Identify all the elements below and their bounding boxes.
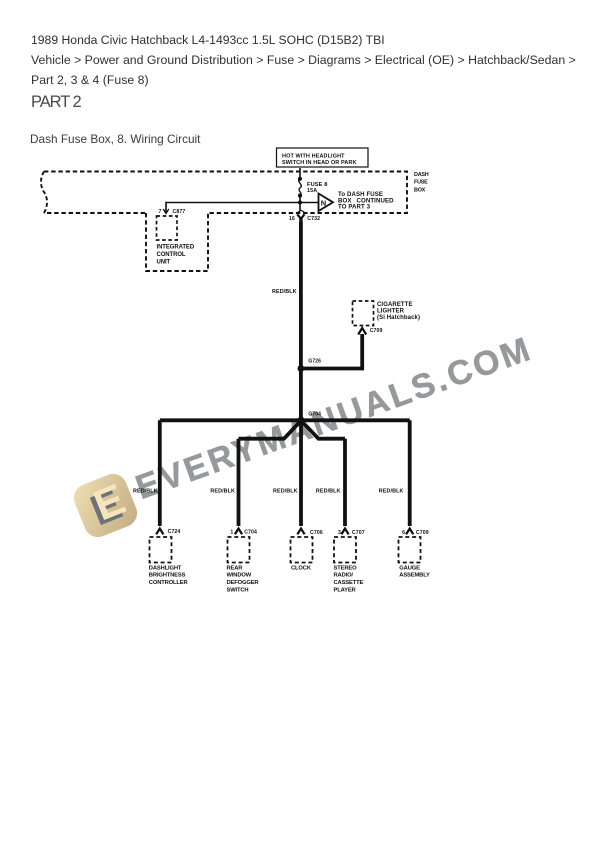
svg-text:1: 1 [230, 529, 233, 535]
svg-text:HOT WITH HEADLIGHT: HOT WITH HEADLIGHT [282, 154, 345, 160]
svg-text:CASSETTE: CASSETTE [334, 580, 364, 586]
svg-text:G726: G726 [308, 358, 321, 364]
svg-text:TO PART 3: TO PART 3 [338, 204, 371, 211]
svg-text:WINDOW: WINDOW [227, 573, 252, 579]
svg-text:RED/BLK: RED/BLK [210, 489, 235, 495]
svg-text:C709: C709 [370, 328, 383, 334]
svg-text:C707: C707 [352, 530, 365, 536]
svg-text:DASH: DASH [414, 172, 429, 178]
svg-text:RED/BLK: RED/BLK [273, 489, 298, 495]
svg-text:PLAYER: PLAYER [334, 588, 357, 594]
svg-text:RED/BLK: RED/BLK [379, 489, 404, 495]
svg-text:RED/BLK: RED/BLK [272, 289, 297, 295]
svg-text:C877: C877 [173, 209, 186, 215]
svg-text:15A: 15A [307, 188, 317, 194]
svg-text:ASSEMBLY: ASSEMBLY [399, 573, 430, 579]
svg-text:CONTROLLER: CONTROLLER [149, 580, 189, 586]
svg-text:16: 16 [289, 216, 295, 222]
svg-text:REAR: REAR [227, 565, 244, 571]
svg-text:C706: C706 [310, 530, 323, 536]
svg-text:BRIGHTNESS: BRIGHTNESS [149, 573, 186, 579]
svg-text:DASHLIGHT: DASHLIGHT [149, 565, 182, 571]
svg-text:C704: C704 [244, 529, 257, 535]
svg-text:3: 3 [338, 530, 341, 536]
svg-text:INTEGRATED: INTEGRATED [157, 244, 195, 250]
svg-text:UNIT: UNIT [157, 260, 171, 266]
svg-text:CIGARETTE: CIGARETTE [377, 302, 413, 308]
svg-text:C724: C724 [168, 529, 181, 535]
svg-text:BOX: BOX [414, 188, 426, 194]
svg-text:DEFOGGER: DEFOGGER [227, 580, 260, 586]
svg-text:CONTROL: CONTROL [157, 252, 186, 258]
svg-text:G704: G704 [308, 411, 321, 417]
svg-text:7: 7 [159, 209, 162, 215]
svg-text:EVERYMANUALS.COM: EVERYMANUALS.COM [131, 330, 537, 507]
svg-text:C732: C732 [307, 216, 320, 222]
svg-text:(Si Hatchback): (Si Hatchback) [377, 315, 420, 321]
svg-text:C709: C709 [416, 530, 429, 536]
svg-text:SWITCH: SWITCH [227, 588, 249, 594]
svg-text:RED/BLK: RED/BLK [316, 489, 341, 495]
svg-text:GAUGE: GAUGE [399, 565, 420, 571]
svg-text:STEREO: STEREO [334, 565, 358, 571]
svg-text:RADIO/: RADIO/ [334, 573, 354, 579]
svg-text:SWITCH IN HEAD OR PARK: SWITCH IN HEAD OR PARK [282, 160, 357, 166]
svg-text:LIGHTER: LIGHTER [377, 308, 405, 314]
svg-text:RED/BLK: RED/BLK [133, 489, 158, 495]
svg-text:6: 6 [402, 530, 405, 536]
svg-text:FUSE: FUSE [414, 180, 428, 186]
svg-text:CLOCK: CLOCK [291, 565, 312, 571]
svg-text:N: N [321, 199, 327, 208]
